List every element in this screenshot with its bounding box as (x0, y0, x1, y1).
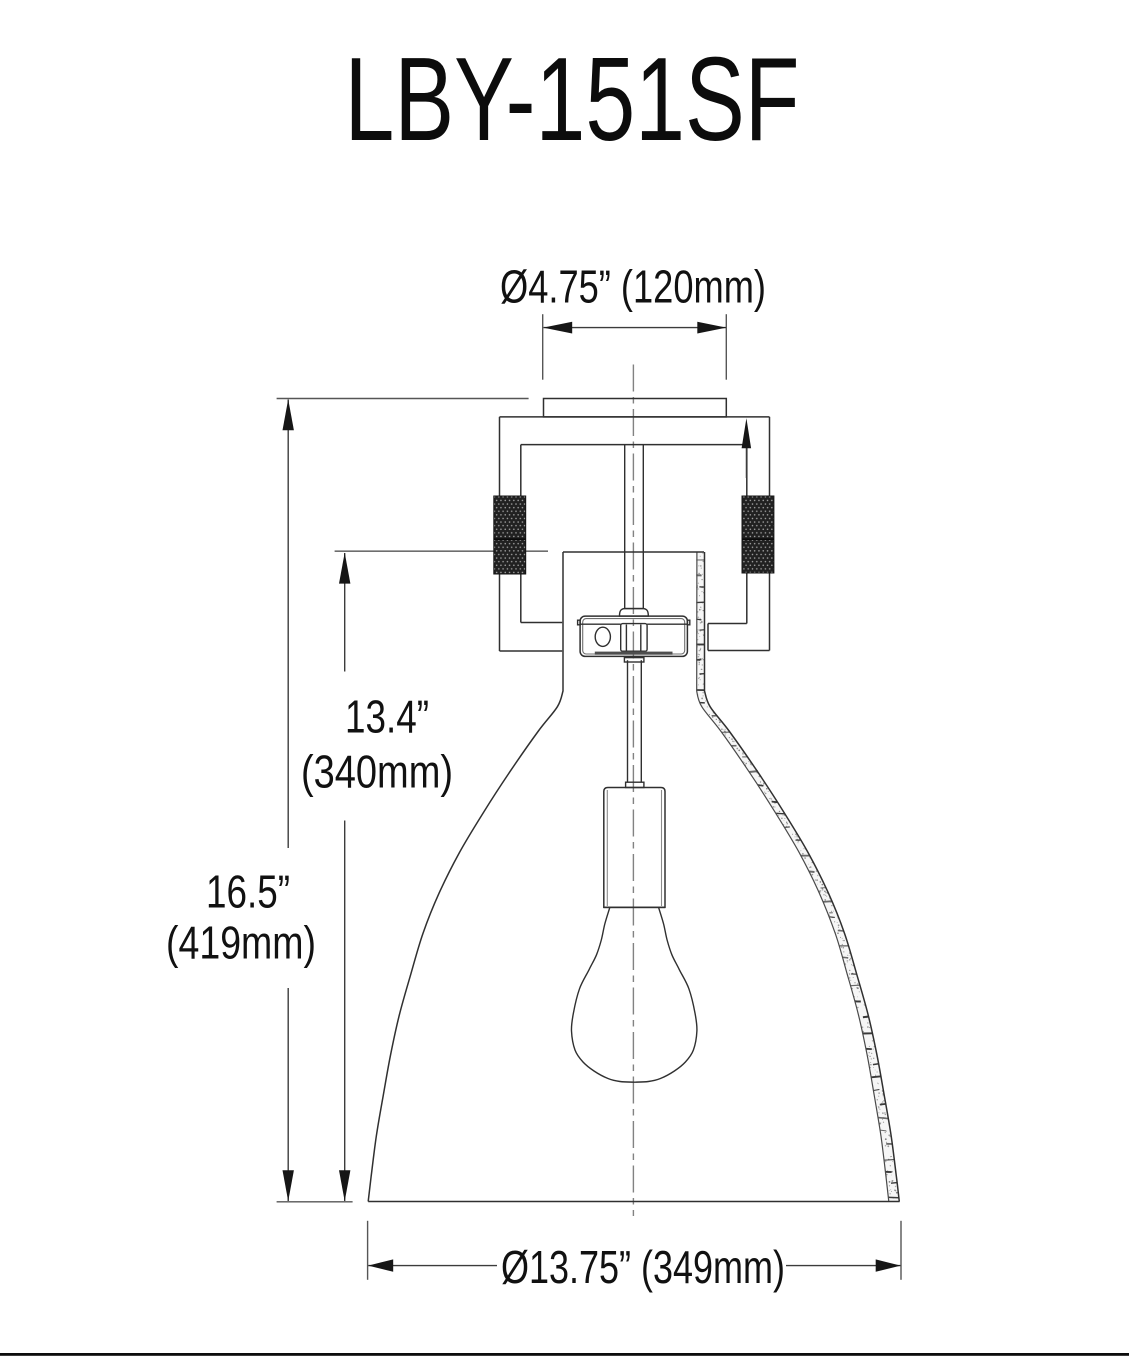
svg-text:Ø13.75” (349mm): Ø13.75” (349mm) (501, 1241, 785, 1293)
svg-text:(419mm): (419mm) (166, 917, 316, 969)
svg-text:Ø4.75” (120mm): Ø4.75” (120mm) (500, 261, 766, 313)
svg-text:13.4”: 13.4” (345, 690, 429, 742)
svg-text:LBY-151SF: LBY-151SF (345, 33, 800, 166)
svg-text:16.5”: 16.5” (206, 865, 290, 917)
svg-text:(340mm): (340mm) (301, 746, 453, 798)
